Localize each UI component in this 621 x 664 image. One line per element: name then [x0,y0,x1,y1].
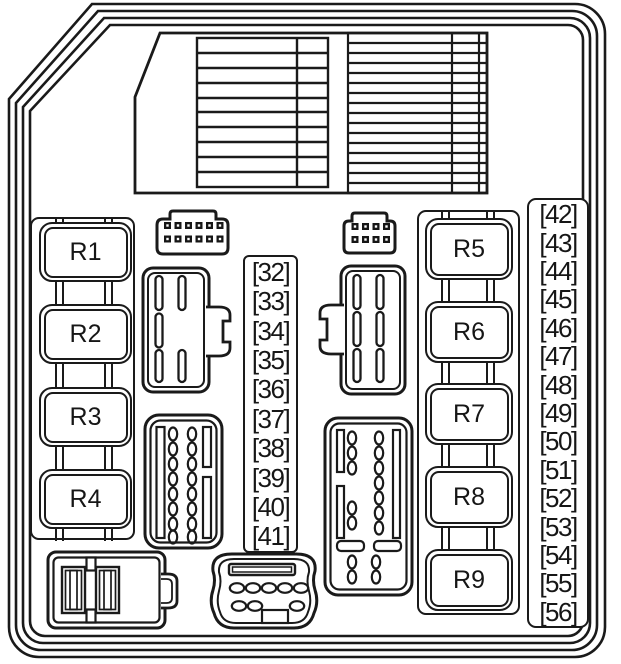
fuse-strip-42-56: [42] [43] [44] [45] [46] [47] [48] [49] … [527,198,589,628]
relay-R5: R5 [425,218,513,280]
fuse-47: [47] [529,342,587,370]
terminal-grid-left-icon [197,38,328,187]
fuse-box-diagram: R1 R2 R3 R4 R5 R6 R7 R8 R9 [32] [33] [34… [0,0,621,664]
connector-12pin-icon [157,211,228,254]
connector-8pin-icon [344,213,395,253]
relay-link [441,280,450,303]
top-terminal-block [135,33,487,193]
relay-link [486,528,495,551]
fuse-42: [42] [529,200,587,228]
fuse-44: [44] [529,257,587,285]
relay-R2: R2 [39,304,132,364]
relay-label: R4 [44,474,128,525]
relay-link [104,282,113,306]
relay-link [55,282,64,306]
relay-R3: R3 [39,387,132,447]
relay-link [55,364,64,389]
fuse-54: [54] [529,541,587,569]
fuse-35: [35] [245,345,296,374]
relay-R4: R4 [39,469,132,529]
relay-link [104,364,113,389]
relay-label: R7 [430,388,509,441]
fuse-33: [33] [245,286,296,315]
connector-scalloped-bottom-icon [211,554,317,628]
fuse-56: [56] [529,598,587,626]
fuse-51: [51] [529,456,587,484]
relay-label: R3 [44,392,128,443]
fuse-41: [41] [245,522,296,551]
relay-R6: R6 [425,301,513,363]
relay-label: R5 [430,223,509,276]
fuse-34: [34] [245,316,296,345]
fuse-50: [50] [529,427,587,455]
connector-oval-left-icon [145,415,222,548]
relay-R8: R8 [425,466,513,528]
terminal-grid-right-icon [348,33,487,193]
relay-link [104,529,113,541]
relay-link [55,447,64,471]
fuse-40: [40] [245,492,296,521]
fuse-46: [46] [529,314,587,342]
relay-label: R8 [430,471,509,524]
connector-slot-right-icon [320,266,405,394]
fuse-37: [37] [245,404,296,433]
relay-R1: R1 [39,222,132,282]
connector-plug-bottom-left-icon [48,552,177,628]
relay-label: R6 [430,306,509,359]
relay-label: R1 [44,227,128,278]
fuse-38: [38] [245,433,296,462]
fuse-43: [43] [529,228,587,256]
relay-link [486,280,495,303]
connector-oval-middle-icon [325,418,412,595]
fuse-strip-32-41: [32] [33] [34] [35] [36] [37] [38] [39] … [243,255,298,553]
relay-link [486,445,495,468]
relay-link [441,362,450,385]
relay-label: R9 [430,554,509,607]
fuse-48: [48] [529,370,587,398]
relay-link [486,362,495,385]
relay-link [441,445,450,468]
relay-R7: R7 [425,383,513,445]
fuse-49: [49] [529,399,587,427]
fuse-55: [55] [529,569,587,597]
relay-link [441,528,450,551]
relay-label: R2 [44,309,128,360]
connector-slot-left-icon [143,268,230,392]
fuse-39: [39] [245,463,296,492]
pin-grid [164,222,224,243]
relay-link [104,447,113,471]
fuse-32: [32] [245,257,296,286]
fuse-53: [53] [529,512,587,540]
fuse-45: [45] [529,285,587,313]
relay-R9: R9 [425,549,513,611]
relay-link [55,529,64,541]
fuse-52: [52] [529,484,587,512]
pin-grid [352,223,391,243]
fuse-36: [36] [245,375,296,404]
